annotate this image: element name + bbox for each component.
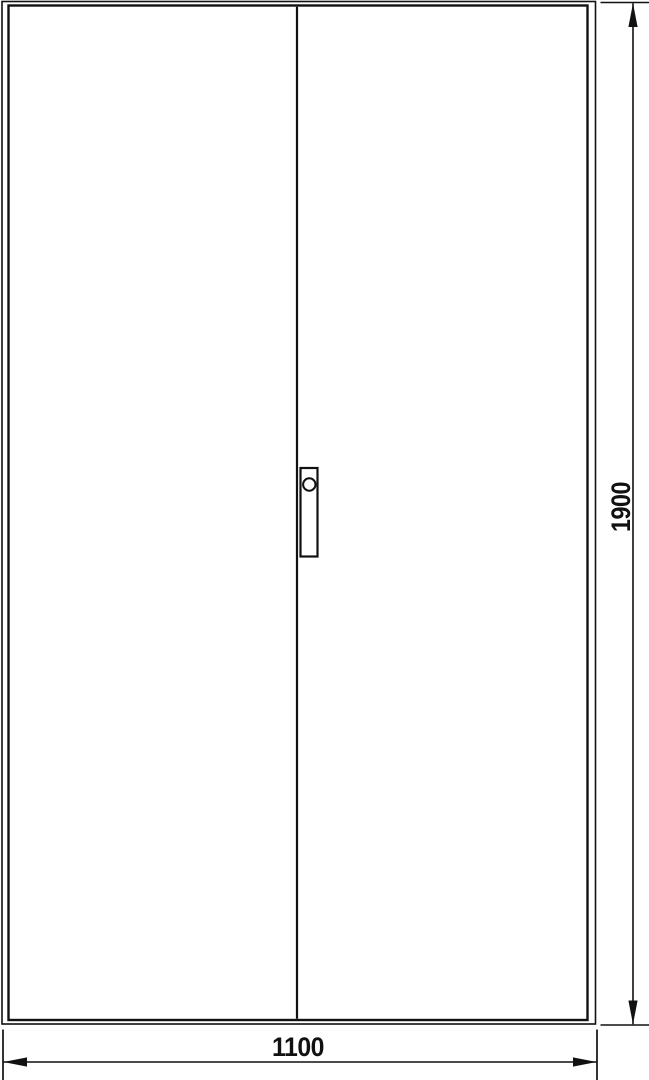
- arrow-up-icon: [628, 3, 637, 27]
- lock-cylinder-circle: [303, 478, 315, 490]
- width-dimension-label: 1100: [272, 1032, 324, 1062]
- arrow-right-icon: [573, 1057, 597, 1066]
- arrow-down-icon: [628, 1001, 637, 1025]
- cabinet-frame: [2, 2, 596, 1025]
- height-dimension-label: 1900: [606, 482, 636, 532]
- door-handle: [301, 468, 318, 557]
- technical-drawing-canvas: 1900 1100: [0, 0, 649, 1080]
- width-dimension: 1100: [3, 1030, 597, 1080]
- cabinet-dimension-drawing: 1900 1100: [0, 0, 649, 1080]
- arrow-left-icon: [3, 1057, 27, 1066]
- height-dimension: 1900: [601, 3, 649, 1026]
